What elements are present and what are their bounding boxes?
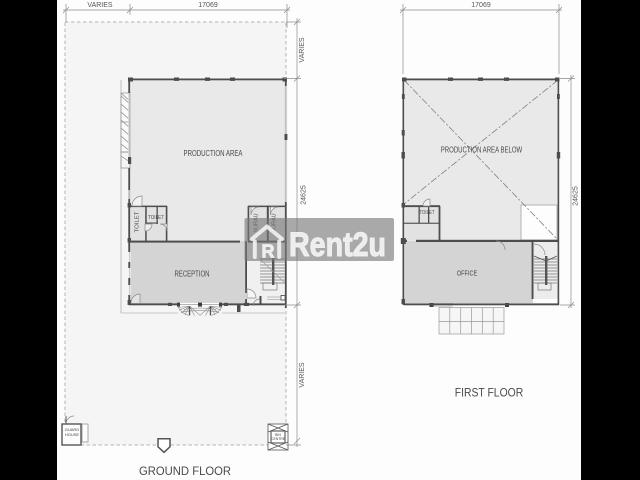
svg-text:VARIES: VARIES bbox=[299, 362, 306, 387]
svg-text:TOILET: TOILET bbox=[420, 210, 436, 216]
svg-text:R: R bbox=[262, 242, 275, 262]
svg-text:17069: 17069 bbox=[198, 2, 218, 9]
svg-text:TOILET: TOILET bbox=[148, 215, 164, 221]
svg-text:VARIES: VARIES bbox=[299, 37, 306, 62]
svg-text:HOUSE: HOUSE bbox=[65, 432, 80, 437]
svg-text:FIRST FLOOR: FIRST FLOOR bbox=[455, 386, 524, 400]
svg-text:PRODUCTION AREA: PRODUCTION AREA bbox=[184, 149, 244, 158]
svg-text:VARIES: VARIES bbox=[87, 2, 112, 9]
svg-text:Rent2u: Rent2u bbox=[289, 226, 386, 264]
svg-text:GROUND FLOOR: GROUND FLOOR bbox=[139, 464, 231, 478]
svg-text:RECEPTION: RECEPTION bbox=[175, 270, 210, 279]
svg-text:TOILET: TOILET bbox=[135, 211, 141, 232]
svg-text:OFFICE: OFFICE bbox=[457, 271, 478, 278]
svg-text:CENTRE: CENTRE bbox=[271, 437, 286, 441]
svg-text:24625: 24625 bbox=[301, 185, 308, 205]
svg-text:17069: 17069 bbox=[471, 2, 491, 9]
svg-text:PRODUCTION AREA BELOW: PRODUCTION AREA BELOW bbox=[441, 146, 523, 155]
svg-text:24625: 24625 bbox=[573, 186, 580, 206]
